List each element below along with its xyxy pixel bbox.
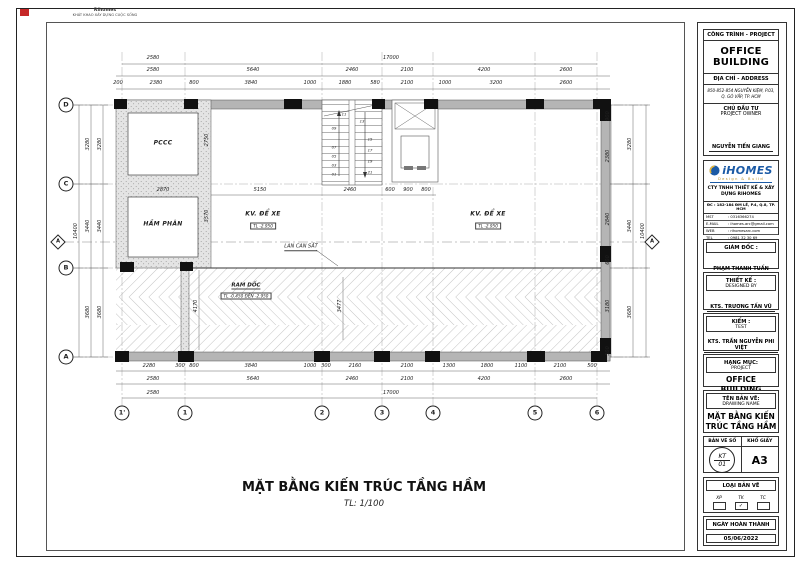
designer-name: KTS. TRƯƠNG TẤN VŨ <box>704 293 778 315</box>
grid-bubble-row: D <box>59 98 74 113</box>
dimension-label: 900 <box>403 187 413 193</box>
company-logo-text: iHOMES <box>722 164 773 177</box>
owner-name: NGUYỄN TIẾN GIANG <box>704 133 778 155</box>
project-header: CÔNG TRÌNH - PROJECT <box>704 30 778 41</box>
dimension-label: 580 <box>370 80 380 86</box>
plan-label: KV. ĐỂ XE <box>245 211 280 218</box>
company-contact-row: E-MAIL: ihomes.arc@gmail.com <box>704 221 778 228</box>
dimension-label: 2100 <box>554 363 567 369</box>
completion-date-panel: NGÀY HOÀN THÀNH 05/06/2022 <box>703 516 779 546</box>
checker-name: KTS. TRẦN NGUYỄN PHI VIỆT <box>704 334 778 356</box>
dimension-label: 2600 <box>560 67 573 73</box>
dimension-label: 17000 <box>383 55 399 61</box>
completion-date-header: NGÀY HOÀN THÀNH <box>706 519 776 530</box>
option-checkbox <box>713 502 726 510</box>
dimension-label: 3680 <box>85 306 91 319</box>
dimension-label: 800 <box>189 80 199 86</box>
drawing-type-option-tk: TK✓ <box>735 496 748 510</box>
address-header: ĐỊA CHỈ - ADDRESS <box>704 74 778 85</box>
dimension-label: 1880 <box>339 80 352 86</box>
dimension-label: 300 <box>175 363 185 369</box>
project-name: OFFICE BUILDING <box>704 41 778 74</box>
dimension-label: 2840 <box>605 213 611 226</box>
stair-step-number: 07 <box>332 145 337 150</box>
stair-step-number: 19 <box>368 159 373 164</box>
section-marker-label: A <box>648 238 657 247</box>
dimension-label: 800 <box>421 187 431 193</box>
dimension-label: 4200 <box>478 67 491 73</box>
dimension-label: 5640 <box>247 376 260 382</box>
option-label: TC <box>757 496 770 501</box>
grid-bubble-row: B <box>59 261 74 276</box>
dimension-label: 2280 <box>143 363 156 369</box>
company-address: ĐC : 182-184 ĐM LẼ, P.4, Q.8, TP. HCM <box>704 202 778 214</box>
dimension-label: 300 <box>321 363 331 369</box>
stair-step-number: 21 <box>368 170 373 175</box>
sheet-number-panel: BẢN VẼ SỐ KHỔ GIẤY KT 01 A3 <box>703 436 779 473</box>
dimension-label: 1000 <box>304 80 317 86</box>
grid-bubble-column: 3 <box>375 406 390 421</box>
sheet-number-circle: KT 01 <box>709 447 735 473</box>
sheet-number-cell: KT 01 <box>704 447 742 473</box>
contact-label: WEB <box>706 229 728 233</box>
dimension-label: 3477 <box>337 300 343 313</box>
dimension-label: 2580 <box>147 55 160 61</box>
dimension-label: 2100 <box>401 67 414 73</box>
paper-size-cell: A3 <box>742 447 779 473</box>
dimension-label: 600 <box>385 187 395 193</box>
plan-label: LAN CAN SẮT <box>284 243 317 251</box>
dimension-label: 1800 <box>481 363 494 369</box>
grid-bubble-column: 2 <box>315 406 330 421</box>
director-header: GIÁM ĐỐC : <box>706 242 776 253</box>
section-marker-label: A <box>54 238 63 247</box>
option-label: XP <box>713 496 726 501</box>
grid-bubble-row: C <box>59 177 74 192</box>
dimension-label: 2460 <box>346 376 359 382</box>
grid-bubble-row: A <box>59 350 74 365</box>
dimension-label: 2100 <box>401 80 414 86</box>
grid-bubble-column: 6 <box>590 406 605 421</box>
stair-step-number: 01 <box>332 172 337 177</box>
option-checkbox <box>757 502 770 510</box>
dimension-label: 2580 <box>147 390 160 396</box>
category-header: HẠNG MỤC: PROJECT <box>706 357 776 373</box>
dimension-label: 2460 <box>344 187 357 193</box>
drawing-scale: TL: 1/100 <box>344 499 384 509</box>
dimension-label: 2460 <box>346 67 359 73</box>
dimension-label: 3680 <box>97 306 103 319</box>
dimension-label: 3440 <box>627 220 633 233</box>
dimension-label: 4200 <box>478 376 491 382</box>
dimension-label: 3200 <box>490 80 503 86</box>
dimension-label: 2870 <box>157 187 170 193</box>
dimension-label: 3680 <box>627 306 633 319</box>
stair-step-number: 17 <box>368 148 373 153</box>
number-header: BẢN VẼ SỐ <box>704 437 742 446</box>
designer-panel: THIẾT KẾ : DESIGNED BY KTS. TRƯƠNG TẤN V… <box>703 272 779 310</box>
option-checkbox: ✓ <box>735 502 748 510</box>
ihomes-logo-icon <box>709 165 720 176</box>
drawing-title: MẶT BẰNG KIẾN TRÚC TẦNG HẦM <box>242 480 486 495</box>
dimension-label: 2600 <box>560 80 573 86</box>
dimension-label: 2100 <box>401 363 414 369</box>
company-contact-row: MST: 0316366274 <box>704 214 778 221</box>
dimension-label: 2380 <box>605 150 611 163</box>
drawing-type-option-xp: XP <box>713 496 726 510</box>
dimension-label: 800 <box>189 363 199 369</box>
dimension-label: 2380 <box>150 80 163 86</box>
dimension-label: 10400 <box>640 223 646 239</box>
stair-step-number: 05 <box>332 154 337 159</box>
stair-step-number: 03 <box>332 163 337 168</box>
grid-bubble-column: 1' <box>115 406 130 421</box>
contact-value: : 0316366274 <box>728 215 754 219</box>
grid-bubble-column: 5 <box>528 406 543 421</box>
drawing-name-panel: TÊN BẢN VẼ: DRAWING NAME MẶT BẰNG KIẾN T… <box>703 390 779 433</box>
plan-label: TL -0.450 ĐẾN -2.950 <box>221 293 272 300</box>
company-name: CTY TNHH THIẾT KẾ & XÂY DỰNG RIHOMES <box>704 185 778 202</box>
plan-label: HẦM PHÂN <box>143 221 182 228</box>
drawing-name: MẶT BẰNG KIẾN TRÚC TẦNG HẦM <box>705 412 777 432</box>
paper-size: A3 <box>752 454 768 467</box>
dimension-label: 500 <box>605 346 611 356</box>
contact-label: E-MAIL <box>706 222 728 226</box>
plan-label: KV. ĐỂ XE <box>470 211 505 218</box>
drawing-type-option-tc: TC <box>757 496 770 510</box>
dimension-label: 2160 <box>349 363 362 369</box>
dimension-label: 900 <box>605 111 611 121</box>
company-contact-row: WEB: rihomesarc.com <box>704 228 778 235</box>
dimension-label: 3180 <box>605 300 611 313</box>
company-panel: iHOMES Design & Build CTY TNHH THIẾT KẾ … <box>703 160 779 235</box>
dimension-label: 3280 <box>627 138 633 151</box>
dimension-label: 5150 <box>254 187 267 193</box>
stair-step-number: 13 <box>360 119 365 124</box>
stair-step-number: 09 <box>332 126 337 131</box>
plan-label: RAM DỐC <box>231 283 260 290</box>
plan-label: TL -2.950 <box>250 223 276 230</box>
company-contact-rows: MST: 0316366274E-MAIL: ihomes.arc@gmail.… <box>704 214 778 242</box>
sheet-number-headers: BẢN VẼ SỐ KHỔ GIẤY <box>704 437 778 447</box>
contact-value: : rihomesarc.com <box>728 229 760 233</box>
dimension-label: 10400 <box>73 223 79 239</box>
contact-label: MST <box>706 215 728 219</box>
dimension-label: 3280 <box>97 138 103 151</box>
dimension-label: 2750 <box>204 134 210 147</box>
option-label: TK <box>735 496 748 501</box>
grid-bubble-column: 1 <box>178 406 193 421</box>
stair-step-number: 15 <box>368 137 373 142</box>
dimension-label: 1000 <box>439 80 452 86</box>
dimension-label: 3570 <box>204 210 210 223</box>
dimension-label: 4170 <box>193 300 199 313</box>
contact-value: : ihomes.arc@gmail.com <box>728 222 774 226</box>
category-panel: HẠNG MỤC: PROJECT OFFICE BUILDING <box>703 354 779 387</box>
drawing-sheet: Rihomes KHÁT KHAO XÂY DỰNG CUỘC SỐNG <box>0 0 800 565</box>
dimension-label: 1300 <box>443 363 456 369</box>
plan-label: PCCC <box>154 140 173 147</box>
drawing-type-header: LOẠI BẢN VẼ <box>706 480 776 491</box>
paper-header: KHỔ GIẤY <box>742 437 779 446</box>
checker-panel: KIỂM : TEST KTS. TRẦN NGUYỄN PHI VIỆT <box>703 313 779 351</box>
company-logo: iHOMES <box>704 161 778 177</box>
director-panel: GIÁM ĐỐC : PHẠM THANH TUẤN <box>703 239 779 269</box>
designer-header: THIẾT KẾ : DESIGNED BY <box>706 275 776 291</box>
project-address: 850-852-854 NGUYỄN KIỆM, P.03, Q. GÒ VẤP… <box>704 85 778 104</box>
dimension-label: 17000 <box>383 390 399 396</box>
dimension-label: 1000 <box>304 363 317 369</box>
dimension-label: 2600 <box>560 376 573 382</box>
drawing-name-header: TÊN BẢN VẼ: DRAWING NAME <box>706 393 776 409</box>
dimension-label: 200 <box>113 80 123 86</box>
dimension-label: 5640 <box>247 67 260 73</box>
dimension-label: 500 <box>587 363 597 369</box>
dimension-label: 600 <box>605 255 611 265</box>
plan-label: TL -2.950 <box>475 223 501 230</box>
dimension-label: 3280 <box>85 138 91 151</box>
drawing-type-panel: LOẠI BẢN VẼ XPTK✓TC <box>703 477 779 513</box>
checker-header: KIỂM : TEST <box>706 316 776 332</box>
company-logo-tagline: Design & Build <box>710 177 772 183</box>
completion-date: 05/06/2022 <box>706 534 776 543</box>
title-block: CÔNG TRÌNH - PROJECT OFFICE BUILDING ĐỊA… <box>697 22 787 551</box>
dimension-label: 1100 <box>515 363 528 369</box>
dimension-label: 2580 <box>147 67 160 73</box>
dimension-label: 2580 <box>147 376 160 382</box>
stair-step-number: 11 <box>342 112 347 117</box>
dimension-label: 3840 <box>245 80 258 86</box>
grid-bubble-column: 4 <box>426 406 441 421</box>
project-panel: CÔNG TRÌNH - PROJECT OFFICE BUILDING ĐỊA… <box>703 29 779 156</box>
owner-header: CHỦ ĐẦU TƯ PROJECT OWNER <box>704 104 778 119</box>
dimension-label: 3440 <box>97 220 103 233</box>
dimension-label: 3440 <box>85 220 91 233</box>
drawing-type-options: XPTK✓TC <box>704 493 778 512</box>
dimension-label: 2100 <box>401 376 414 382</box>
dimension-label: 3840 <box>245 363 258 369</box>
